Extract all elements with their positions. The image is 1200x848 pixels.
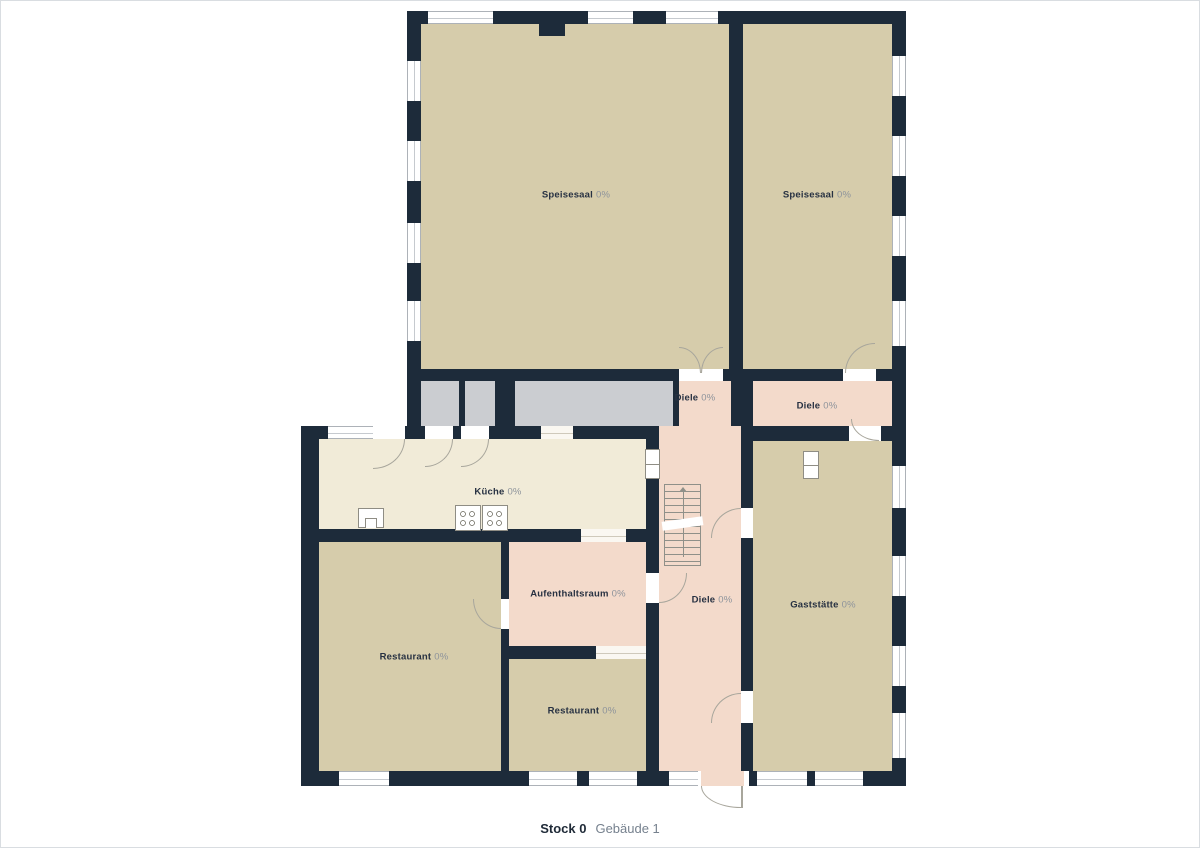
wall-segment <box>389 771 529 786</box>
window <box>892 713 906 758</box>
window <box>589 771 637 786</box>
wall-segment <box>577 771 589 786</box>
window <box>407 301 421 341</box>
stairs-up-arrow-icon <box>679 487 687 492</box>
window <box>529 771 577 786</box>
chimney-pier <box>539 24 565 36</box>
wall-segment <box>319 529 581 542</box>
exit-threshold <box>701 771 744 786</box>
room-name: Diele <box>797 400 821 411</box>
window <box>339 771 389 786</box>
wall-segment <box>501 629 509 771</box>
wall-segment <box>493 11 588 24</box>
window <box>669 771 698 786</box>
room-label-gaststaette: Gaststätte0% <box>790 600 856 610</box>
window <box>892 56 906 96</box>
room-label-diele-center: Diele0% <box>692 595 733 605</box>
wall-opening <box>596 646 646 659</box>
room-diele-top-left <box>679 381 731 426</box>
wall-segment <box>723 369 843 381</box>
wall-segment <box>407 263 421 301</box>
room-label-speisesaal-right: Speisesaal0% <box>783 190 851 200</box>
wall-segment <box>892 256 906 301</box>
floor-label: Stock 0 <box>540 821 586 836</box>
wall-segment <box>501 529 509 599</box>
room-percent: 0% <box>837 189 851 200</box>
exit-door-arc <box>701 786 741 808</box>
window <box>892 466 906 508</box>
floorplan-canvas: Speisesaal0% Speisesaal0% Diele0% Diele0… <box>0 0 1200 848</box>
room-label-speisesaal-left: Speisesaal0% <box>542 190 610 200</box>
wall-segment <box>863 771 906 786</box>
room-name: Diele <box>692 594 716 605</box>
window <box>815 771 863 786</box>
room-label-aufenthaltsraum: Aufenthaltsraum0% <box>530 589 626 599</box>
floor-caption: Stock 0Gebäude 1 <box>1 821 1199 836</box>
window <box>892 216 906 256</box>
wall-segment <box>876 369 892 381</box>
wall-segment <box>729 24 743 381</box>
window <box>407 223 421 263</box>
service-hatch <box>645 449 660 479</box>
kitchen-sink <box>358 508 384 528</box>
wall-segment <box>892 596 906 646</box>
room-label-diele-top-left: Diele0% <box>675 393 716 403</box>
wall-segment <box>573 426 646 439</box>
wall-segment <box>421 426 425 439</box>
exit-door-leaf <box>741 786 743 808</box>
wall-segment <box>718 11 906 24</box>
wall-segment <box>892 24 906 56</box>
room-name: Gaststätte <box>790 599 838 610</box>
wall-segment <box>646 479 659 573</box>
wall-segment <box>753 426 849 441</box>
room-utility-c <box>515 381 673 426</box>
wall-segment <box>892 96 906 136</box>
wall-segment <box>646 603 659 771</box>
room-name: Speisesaal <box>783 189 834 200</box>
room-name: Aufenthaltsraum <box>530 588 608 599</box>
window <box>428 11 493 24</box>
window <box>666 11 718 24</box>
wall-segment <box>646 426 659 449</box>
room-name: Diele <box>675 392 699 403</box>
wall-segment <box>807 771 815 786</box>
wall-segment <box>731 381 753 426</box>
window <box>328 426 373 439</box>
room-name: Küche <box>474 486 504 497</box>
wall-segment <box>749 771 757 786</box>
wall-segment <box>407 341 421 439</box>
wall-segment <box>301 426 319 771</box>
stove-icon <box>482 505 508 531</box>
wall-segment <box>673 381 679 426</box>
wall-segment <box>892 176 906 216</box>
room-label-restaurant-bottom: Restaurant0% <box>548 706 617 716</box>
room-name: Restaurant <box>548 705 600 716</box>
wall-segment <box>626 529 659 542</box>
window <box>892 136 906 176</box>
room-percent: 0% <box>507 486 521 497</box>
wall-segment <box>892 346 906 466</box>
room-utility-b <box>465 381 495 426</box>
wall-segment <box>407 101 421 141</box>
window <box>892 646 906 686</box>
wall-opening <box>581 529 626 542</box>
room-percent: 0% <box>823 400 837 411</box>
wall-segment <box>489 426 541 439</box>
wall-segment <box>405 426 421 439</box>
room-name: Restaurant <box>380 651 432 662</box>
wall-segment <box>301 771 339 786</box>
wall-segment <box>407 11 428 24</box>
wall-segment <box>421 369 679 381</box>
window <box>757 771 807 786</box>
wall-segment <box>741 723 753 771</box>
wall-opening <box>541 426 573 439</box>
room-percent: 0% <box>718 594 732 605</box>
wall-segment <box>892 686 906 713</box>
radiator-fixture <box>803 451 819 479</box>
wall-segment <box>453 426 461 439</box>
room-percent: 0% <box>434 651 448 662</box>
building-label: Gebäude 1 <box>595 821 659 836</box>
door-arc <box>851 419 879 441</box>
wall-segment <box>892 508 906 556</box>
wall-segment <box>633 11 666 24</box>
window <box>407 61 421 101</box>
wall-segment <box>407 24 421 61</box>
wall-segment <box>637 771 669 786</box>
staircase <box>664 484 701 566</box>
room-percent: 0% <box>612 588 626 599</box>
wall-segment <box>741 426 753 508</box>
room-percent: 0% <box>602 705 616 716</box>
stove-icon <box>455 505 481 531</box>
wall-segment <box>509 646 596 659</box>
wall-segment <box>407 181 421 223</box>
room-label-restaurant-left: Restaurant0% <box>380 652 449 662</box>
room-percent: 0% <box>596 189 610 200</box>
room-percent: 0% <box>701 392 715 403</box>
wall-segment <box>459 381 465 426</box>
wall-segment <box>495 381 515 426</box>
window <box>407 141 421 181</box>
window <box>892 301 906 346</box>
room-label-diele-top-right: Diele0% <box>797 401 838 411</box>
window <box>892 556 906 596</box>
room-label-kueche: Küche0% <box>474 487 521 497</box>
wall-segment <box>741 538 753 691</box>
room-name: Speisesaal <box>542 189 593 200</box>
wall-segment <box>881 426 892 441</box>
window <box>588 11 633 24</box>
room-percent: 0% <box>842 599 856 610</box>
room-utility-a <box>421 381 459 426</box>
